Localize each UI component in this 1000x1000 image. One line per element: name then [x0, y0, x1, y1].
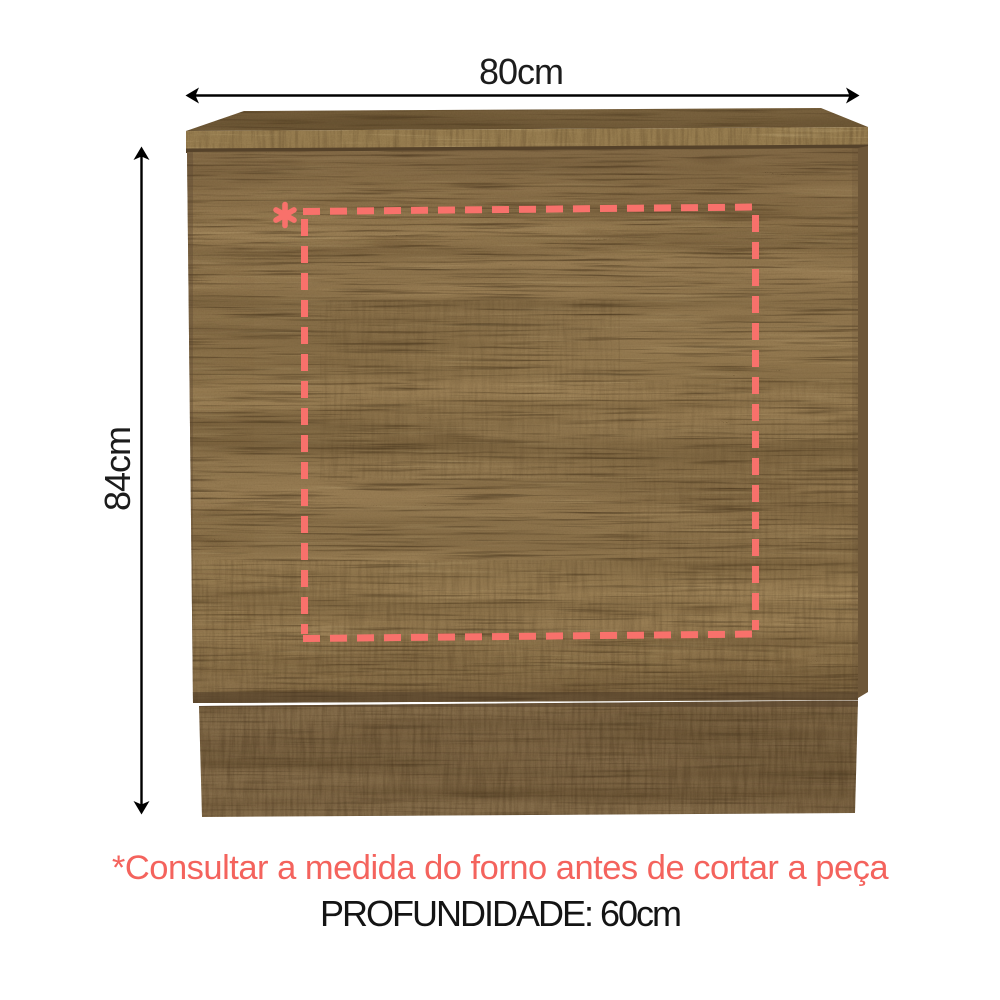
svg-text:*Consultar a medida do forno a: *Consultar a medida do forno antes de co… — [112, 849, 889, 887]
svg-text:84cm: 84cm — [97, 427, 138, 511]
svg-text:PROFUNDIDADE: 60cm: PROFUNDIDADE: 60cm — [320, 893, 680, 934]
svg-text:80cm: 80cm — [479, 51, 563, 92]
